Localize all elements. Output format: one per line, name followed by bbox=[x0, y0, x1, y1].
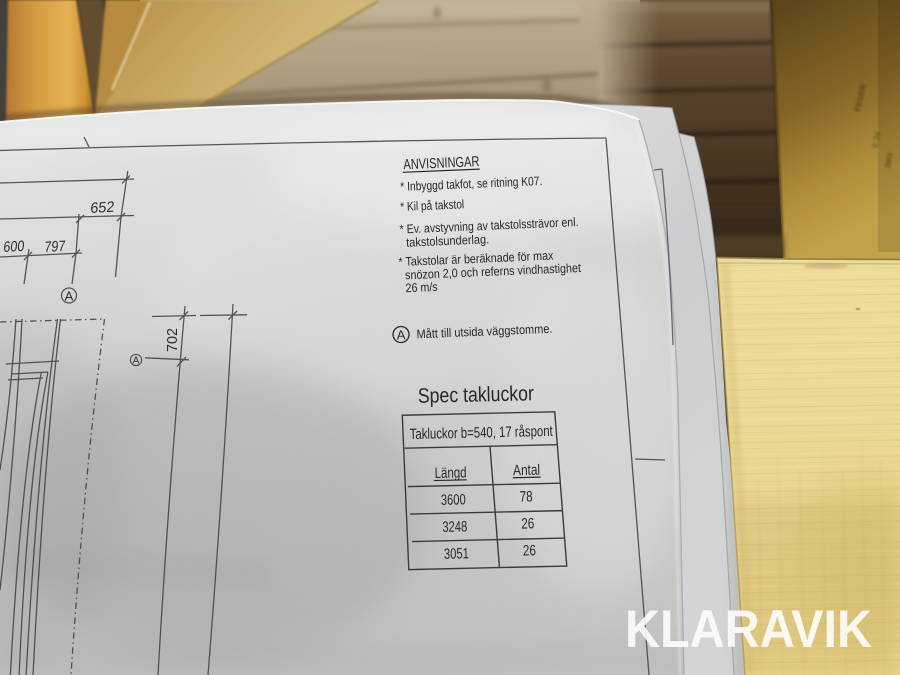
svg-text:KLARAVIK: KLARAVIK bbox=[625, 600, 872, 659]
svg-text:3051: 3051 bbox=[444, 545, 469, 563]
svg-text:Takluckor b=540, 17 råspont: Takluckor b=540, 17 råspont bbox=[410, 423, 554, 443]
svg-text:A: A bbox=[65, 288, 74, 303]
svg-text:78: 78 bbox=[519, 488, 532, 505]
svg-text:652: 652 bbox=[90, 199, 115, 217]
svg-text:A: A bbox=[396, 327, 406, 342]
svg-text:Spec takluckor: Spec takluckor bbox=[418, 382, 534, 408]
svg-text:26: 26 bbox=[523, 542, 536, 559]
svg-text:3248: 3248 bbox=[442, 518, 467, 536]
svg-text:600: 600 bbox=[3, 238, 25, 256]
svg-text:797: 797 bbox=[44, 238, 66, 256]
svg-text:Antal: Antal bbox=[513, 462, 540, 480]
svg-text:3600: 3600 bbox=[441, 491, 466, 509]
svg-text:A: A bbox=[133, 356, 140, 367]
svg-text:26 m/s: 26 m/s bbox=[405, 280, 438, 295]
svg-text:* Kil på takstol: * Kil på takstol bbox=[400, 197, 465, 214]
svg-text:26: 26 bbox=[521, 515, 534, 532]
svg-text:702: 702 bbox=[164, 328, 181, 352]
